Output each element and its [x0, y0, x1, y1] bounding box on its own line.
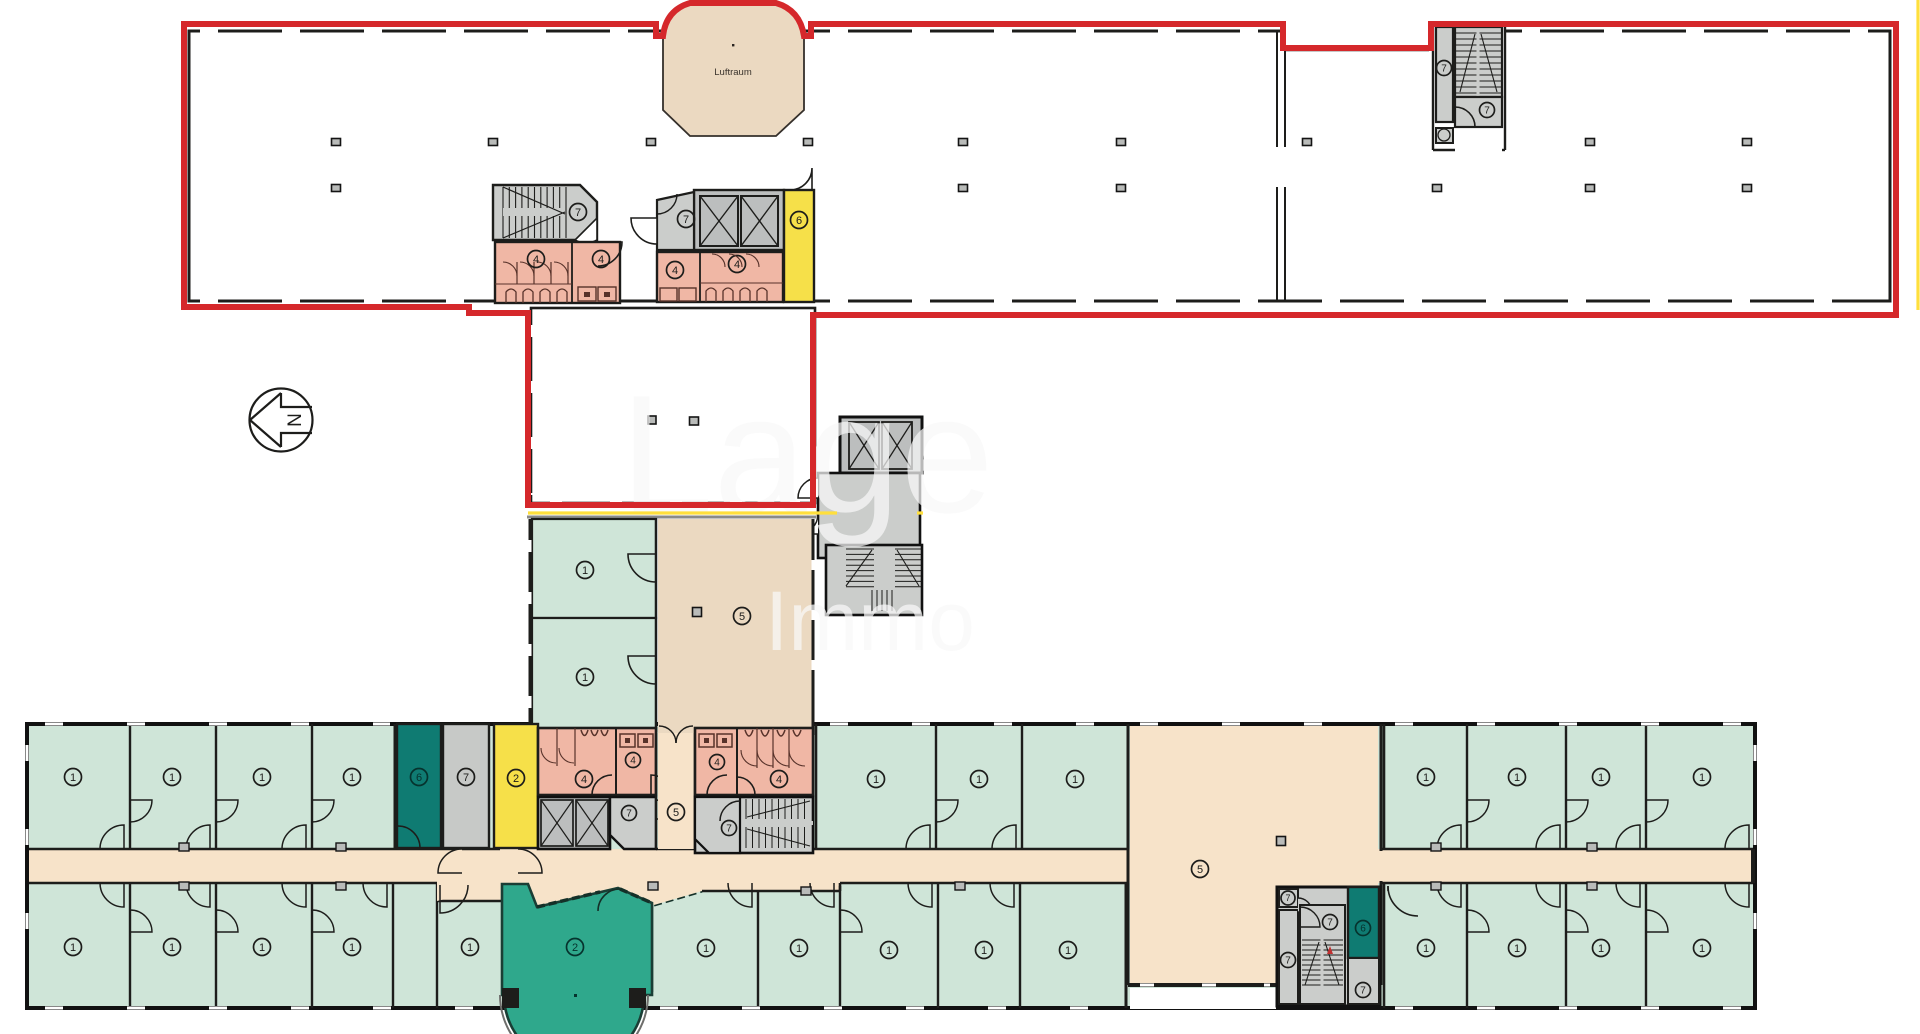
svg-text:1: 1 [981, 945, 987, 957]
svg-text:1: 1 [1598, 943, 1604, 955]
svg-text:4: 4 [714, 758, 720, 769]
svg-text:1: 1 [1423, 772, 1429, 784]
svg-text:1: 1 [259, 772, 265, 784]
svg-text:7: 7 [1484, 106, 1490, 117]
svg-text:1: 1 [70, 772, 76, 784]
svg-text:2: 2 [572, 942, 578, 954]
svg-text:4: 4 [776, 774, 782, 786]
svg-text:1: 1 [582, 565, 588, 577]
svg-text:4: 4 [672, 265, 678, 277]
svg-text:6: 6 [1360, 924, 1366, 935]
svg-text:6: 6 [416, 772, 422, 784]
svg-text:1: 1 [1598, 772, 1604, 784]
svg-text:7: 7 [463, 772, 469, 784]
svg-text:Immo: Immo [765, 574, 975, 668]
svg-text:1: 1 [349, 942, 355, 954]
svg-text:5: 5 [673, 807, 679, 819]
svg-text:5: 5 [1197, 864, 1203, 876]
svg-text:1: 1 [1423, 943, 1429, 955]
svg-text:1: 1 [1072, 774, 1078, 786]
svg-text:1: 1 [1699, 943, 1705, 955]
svg-text:6: 6 [796, 215, 802, 227]
svg-text:1: 1 [467, 942, 473, 954]
svg-text:1: 1 [873, 774, 879, 786]
svg-text:4: 4 [598, 254, 604, 266]
svg-text:Lage: Lage [620, 360, 994, 548]
svg-text:1: 1 [259, 942, 265, 954]
svg-text:1: 1 [976, 774, 982, 786]
svg-text:1: 1 [349, 772, 355, 784]
svg-text:N: N [285, 413, 306, 427]
svg-text:1: 1 [169, 942, 175, 954]
svg-text:1: 1 [1065, 945, 1071, 957]
svg-text:4: 4 [581, 774, 587, 786]
svg-text:7: 7 [626, 809, 632, 820]
svg-text:1: 1 [1699, 772, 1705, 784]
svg-text:7: 7 [1441, 64, 1447, 75]
svg-text:7: 7 [1285, 956, 1291, 967]
svg-text:2: 2 [513, 773, 519, 785]
svg-text:1: 1 [1514, 772, 1520, 784]
svg-text:1: 1 [1514, 943, 1520, 955]
svg-text:1: 1 [796, 943, 802, 955]
svg-text:1: 1 [582, 672, 588, 684]
svg-text:7: 7 [1285, 893, 1290, 903]
svg-text:1: 1 [886, 945, 892, 957]
svg-text:1: 1 [70, 942, 76, 954]
svg-text:7: 7 [683, 214, 689, 226]
svg-text:1: 1 [169, 772, 175, 784]
svg-text:1: 1 [703, 943, 709, 955]
svg-text:7: 7 [1360, 986, 1366, 997]
svg-text:7: 7 [1327, 918, 1333, 929]
svg-text:7: 7 [575, 207, 581, 219]
svg-text:5: 5 [739, 611, 745, 623]
svg-text:4: 4 [630, 756, 636, 767]
svg-text:4: 4 [734, 259, 740, 271]
svg-text:7: 7 [726, 824, 732, 835]
svg-text:4: 4 [533, 254, 539, 266]
svg-text:Luftraum: Luftraum [714, 67, 752, 78]
